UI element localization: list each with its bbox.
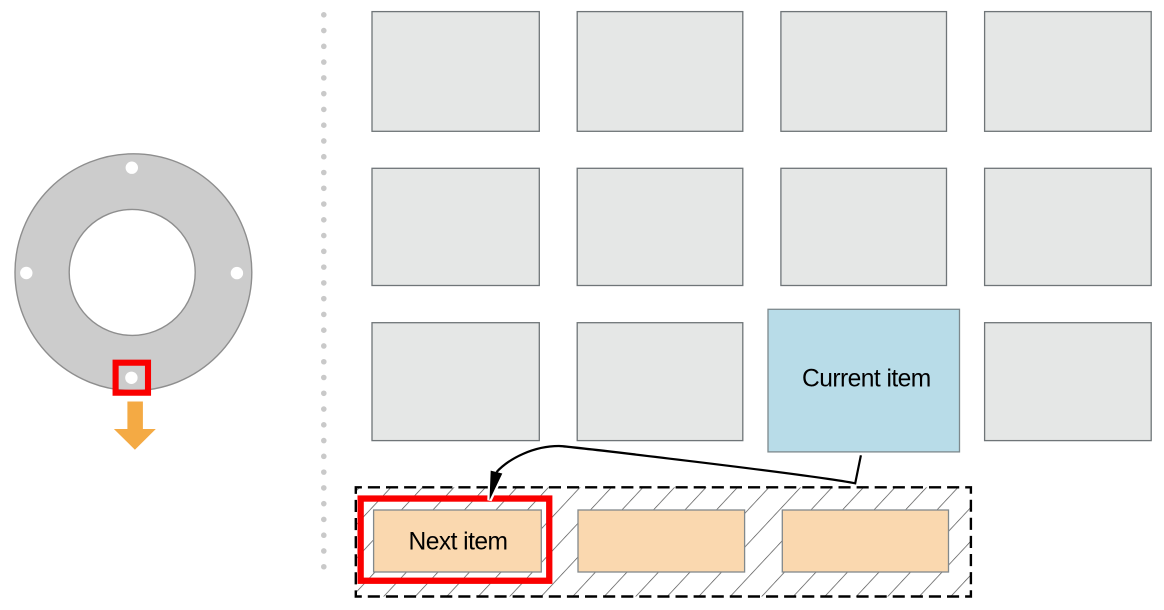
- svg-text:Next item: Next item: [409, 528, 508, 555]
- svg-text:Current item: Current item: [802, 365, 931, 392]
